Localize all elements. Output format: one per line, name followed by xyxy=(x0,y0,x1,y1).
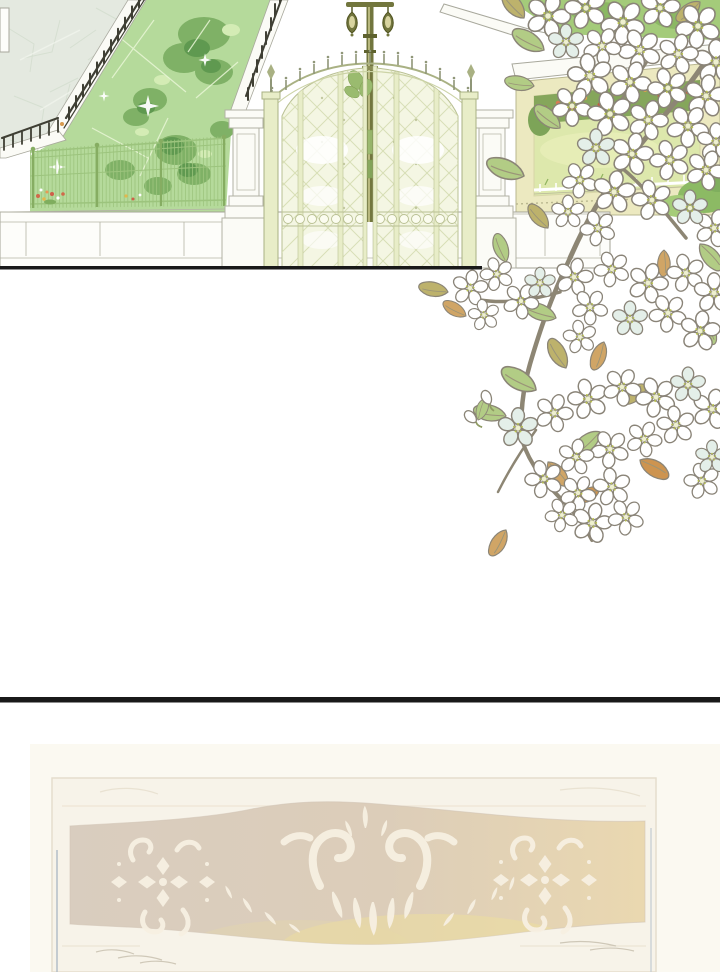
blossom xyxy=(529,388,580,438)
leaf xyxy=(497,360,540,400)
leaf xyxy=(637,452,673,485)
blossom xyxy=(554,436,597,478)
blossom xyxy=(496,276,547,326)
blossom xyxy=(566,498,618,548)
leaves-tan xyxy=(440,249,672,559)
leaf xyxy=(617,381,650,408)
leaf xyxy=(574,484,603,505)
leaves-orange xyxy=(574,452,672,506)
shrub xyxy=(528,104,552,136)
blossom xyxy=(679,459,720,504)
railing-lamp-dot xyxy=(60,122,64,126)
leaf xyxy=(417,278,450,302)
leaf xyxy=(522,297,558,327)
leaf xyxy=(544,335,570,371)
blossom xyxy=(686,384,720,434)
leaf xyxy=(471,400,507,426)
leaf xyxy=(544,457,571,490)
blossom xyxy=(619,415,668,464)
blossom xyxy=(669,367,707,403)
blossom xyxy=(628,370,684,425)
faded-plaque-panel xyxy=(0,700,720,972)
webtoon-page xyxy=(0,0,720,972)
blossom xyxy=(589,465,635,510)
blossom xyxy=(595,360,649,413)
blossom xyxy=(497,408,540,448)
blossom xyxy=(653,403,699,448)
blossom xyxy=(560,317,601,356)
blossom xyxy=(694,440,720,474)
estate-entrance-panel xyxy=(0,0,720,272)
buds xyxy=(462,389,499,431)
blossom xyxy=(611,301,649,337)
blossom xyxy=(641,286,695,339)
inner-garden-view xyxy=(528,80,700,196)
blossom xyxy=(676,307,720,354)
corner-structure xyxy=(0,8,9,52)
leaf xyxy=(440,296,468,323)
blossom xyxy=(693,273,720,313)
blossom xyxy=(562,374,614,424)
leaf xyxy=(471,396,492,422)
blossom xyxy=(539,492,585,538)
leaf xyxy=(483,527,513,559)
leaf xyxy=(585,340,612,373)
blossom xyxy=(583,422,637,475)
bud xyxy=(462,409,486,431)
blossom xyxy=(564,281,616,332)
leaf xyxy=(569,428,605,458)
blossom xyxy=(465,297,503,334)
leaf xyxy=(696,315,720,348)
blossom xyxy=(519,454,570,504)
bud xyxy=(479,389,499,413)
blossom xyxy=(448,267,491,309)
blossom xyxy=(553,468,604,518)
blossom xyxy=(600,491,652,543)
